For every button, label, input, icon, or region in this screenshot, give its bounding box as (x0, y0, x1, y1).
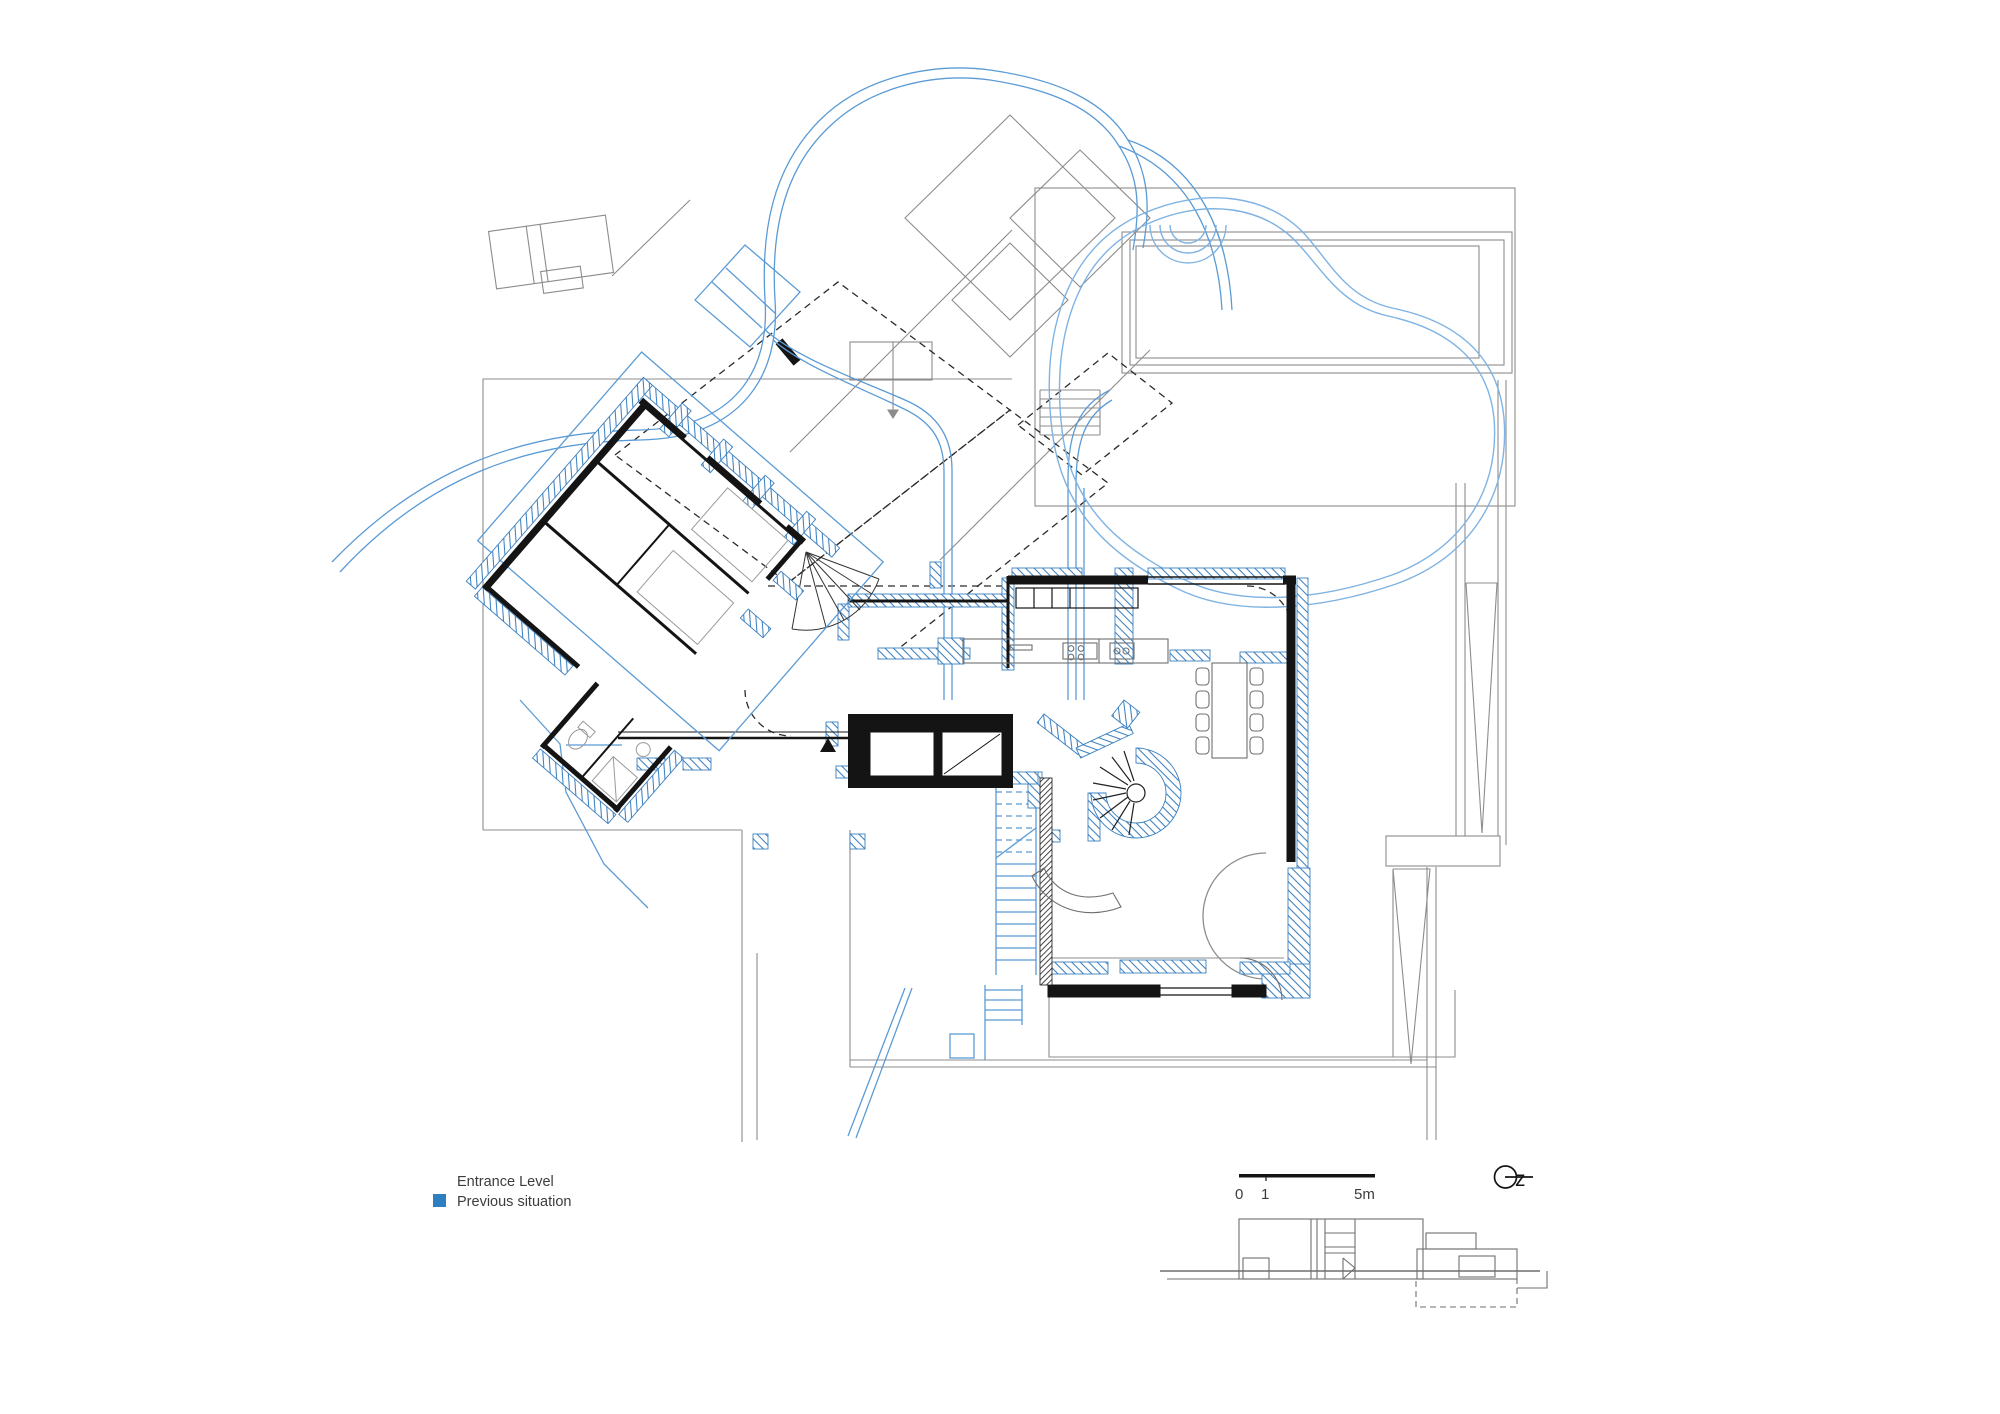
previous-pool-outline (1049, 198, 1504, 608)
entry-block (848, 714, 1013, 788)
scale-mid: 1 (1261, 1186, 1269, 1203)
legend-previous-swatch (433, 1194, 446, 1207)
section-elevation (1160, 1219, 1547, 1307)
scale-bar: 0 1 5m (1235, 1174, 1375, 1203)
previous-entry-stair (996, 782, 1036, 975)
roof-dashed-layer (615, 282, 1292, 991)
dining-table (1196, 663, 1263, 758)
scale-end: 5m (1354, 1186, 1375, 1203)
legend-level-label: Entrance Level (457, 1174, 554, 1190)
legend-previous-label: Previous situation (457, 1194, 571, 1210)
floor-plan-canvas: Entrance Level Previous situation 0 1 5m… (0, 0, 2000, 1414)
kitchen-island (963, 639, 1168, 663)
previous-stair (950, 985, 1022, 1060)
annotations: Entrance Level Previous situation 0 1 5m… (433, 1166, 1547, 1307)
north-icon: z (1495, 1166, 1534, 1191)
winder-stair (792, 552, 879, 630)
scale-start: 0 (1235, 1186, 1243, 1203)
bedroom-wing (394, 352, 883, 847)
drawing-sheet: Entrance Level Previous situation 0 1 5m… (0, 0, 2000, 1414)
site-layer (483, 115, 1515, 1142)
previous-situation-layer (332, 68, 1232, 1138)
legend: Entrance Level Previous situation (433, 1174, 571, 1210)
north-label: z (1515, 1168, 1526, 1191)
